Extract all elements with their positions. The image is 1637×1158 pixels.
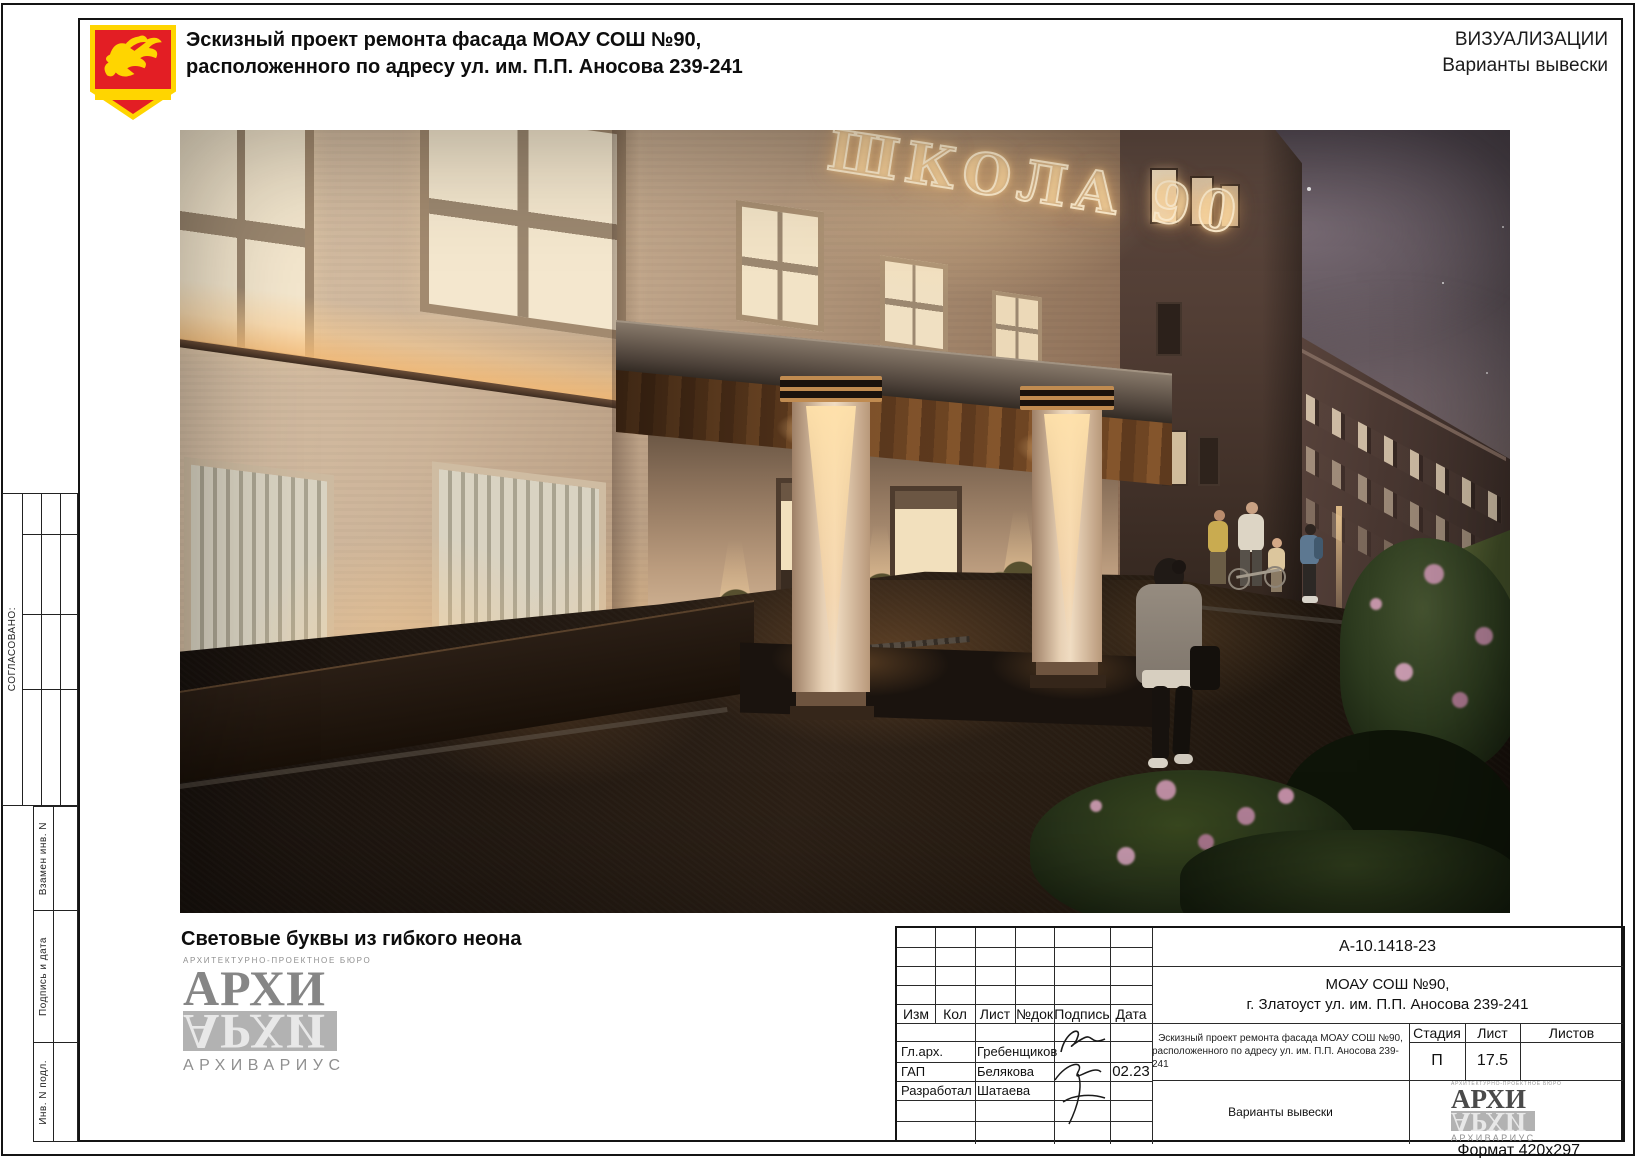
inventory-table: Взамен инв. N Подпись и дата Инв. N подл…	[33, 806, 78, 1142]
bicycle	[1228, 556, 1290, 592]
col-list: Лист	[975, 1004, 1015, 1023]
title-block: Изм Кол Лист №док Подпись Дата Гл.арх. Г…	[895, 926, 1625, 1142]
date-value: 02.23	[1110, 1062, 1152, 1081]
name-chief-architect: Гребенщиков	[977, 1041, 1054, 1062]
render-caption: Световые буквы из гибкого неона	[181, 928, 522, 951]
object-name: МОАУ СОШ №90, г. Златоуст ул. им. П.П. А…	[1152, 966, 1623, 1023]
role-chief-architect: Гл.арх.	[901, 1041, 975, 1062]
col-izm: Изм	[897, 1004, 935, 1023]
column-capital	[1020, 386, 1114, 410]
sheets-label: Листов	[1520, 1023, 1623, 1042]
approval-table: СОГЛАСОВАНО:	[2, 493, 78, 806]
role-gap: ГАП	[901, 1062, 975, 1081]
dark-window	[1198, 436, 1220, 486]
sheets-value	[1520, 1042, 1623, 1080]
sheet-subtitle: ВИЗУАЛИЗАЦИИ Варианты вывески	[1180, 27, 1608, 79]
format-note: Формат 420х297	[1350, 1142, 1580, 1158]
stage-label: Стадия	[1409, 1023, 1465, 1042]
upper-window	[420, 130, 626, 340]
field-vzamen-inv: Взамен инв. N	[38, 822, 49, 895]
sheet-title-line1: Эскизный проект ремонта фасада МОАУ СОШ …	[186, 27, 743, 54]
doc-number: А-10.1418-23	[1152, 928, 1623, 966]
signature	[1047, 1054, 1113, 1128]
col-doc: №док	[1015, 1004, 1054, 1023]
sheet-title-line2: расположенного по адресу ул. им. П.П. Ан…	[186, 54, 743, 81]
stage-value: П	[1409, 1042, 1465, 1080]
entrance-column	[1032, 386, 1102, 706]
render-image: ШКОЛА 90	[180, 130, 1510, 913]
people-group	[1202, 502, 1342, 624]
bureau-brand: АРХИВАРИУС	[183, 1057, 353, 1075]
column-capital	[780, 376, 882, 402]
flowers	[1370, 598, 1382, 610]
sheet-label: Лист	[1465, 1023, 1520, 1042]
col-date: Дата	[1110, 1004, 1152, 1023]
bush	[1180, 830, 1510, 913]
drawing-sheet: Эскизный проект ремонта фасада МОАУ СОШ …	[0, 0, 1637, 1158]
bureau-logo-small: АРХИТЕКТУРНО-ПРОЕКТНОЕ БЮРО АРХИ АРХИ АР…	[1451, 1081, 1581, 1143]
bureau-logo: АРХИТЕКТУРНО-ПРОЕКТНОЕ БЮРО АРХИ АРХИ АР…	[183, 956, 353, 1075]
flowers	[1090, 800, 1102, 812]
winged-horse-icon	[97, 32, 169, 90]
bureau-logo-reflection-band: АРХИ	[183, 1011, 337, 1051]
visualizations-label: ВИЗУАЛИЗАЦИИ	[1180, 27, 1608, 53]
bureau-logo-text: АРХИ	[183, 965, 353, 1011]
field-podpis-data: Подпись и дата	[38, 937, 49, 1016]
zlatoust-coat-of-arms-icon	[90, 25, 176, 120]
field-inv-podl: Инв. N подл.	[38, 1060, 49, 1125]
name-developer: Шатаева	[977, 1081, 1054, 1100]
sheet-content-title: Варианты вывески	[1152, 1080, 1409, 1144]
agreed-label: СОГЛАСОВАНО:	[7, 607, 18, 691]
name-gap: Белякова	[977, 1062, 1054, 1081]
sheet-title: Эскизный проект ремонта фасада МОАУ СОШ …	[186, 27, 743, 81]
project-description: Эскизный проект ремонта фасада МОАУ СОШ …	[1152, 1023, 1409, 1080]
col-sign: Подпись	[1054, 1004, 1110, 1023]
role-developer: Разработал	[901, 1081, 975, 1100]
sheet-value: 17.5	[1465, 1042, 1520, 1080]
stamp-logo-cell: АРХИТЕКТУРНО-ПРОЕКТНОЕ БЮРО АРХИ АРХИ АР…	[1409, 1080, 1623, 1144]
entrance-column	[792, 376, 870, 736]
col-kol: Кол	[935, 1004, 975, 1023]
sign-variants-label: Варианты вывески	[1180, 53, 1608, 79]
